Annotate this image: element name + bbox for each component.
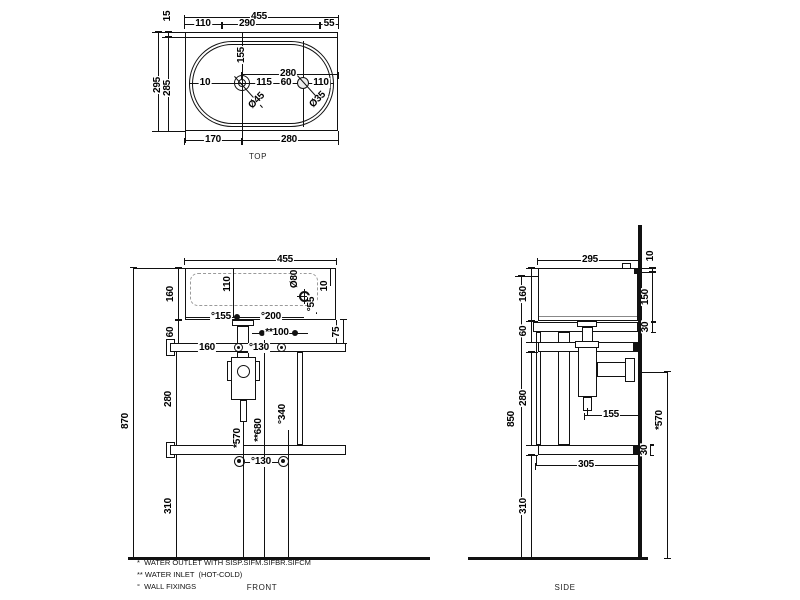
dim-line — [652, 272, 653, 322]
dim-label: 280 — [519, 389, 529, 407]
dim-label: 155 — [237, 46, 247, 64]
dim-label: 110 — [194, 19, 212, 29]
footnote-water-inlet: ** WATER INLET (HOT-COLD) — [137, 570, 242, 579]
dim-label: 115 — [255, 78, 273, 88]
dim-label: 850 — [507, 410, 517, 428]
dim-label: 10 — [320, 280, 330, 293]
dim-label: 310 — [519, 497, 529, 515]
dim-label: 55 — [323, 19, 336, 29]
dim-label: 170 — [204, 135, 222, 145]
view-caption-side: SIDE — [554, 583, 575, 592]
dim-line — [650, 445, 651, 455]
dim-label: 75 — [332, 326, 342, 339]
dim-label: 290 — [238, 19, 256, 29]
view-caption-front: FRONT — [247, 583, 278, 592]
dim-label: 160 — [198, 343, 216, 353]
basin-side-outline — [538, 268, 638, 321]
ext-line — [536, 455, 537, 465]
dim-label: °200 — [260, 312, 282, 322]
dim-label: 10 — [199, 78, 212, 88]
dim-label: °130 — [248, 343, 270, 353]
dim-label: °155 — [210, 312, 232, 322]
side-view: 295 10 150 30 160 60 280 850 155 30 305 … — [0, 0, 800, 600]
ext-line — [637, 268, 656, 269]
ext-line — [526, 352, 538, 353]
dim-label: *570 — [655, 409, 665, 431]
wall-line — [638, 225, 642, 560]
dim-line — [531, 268, 532, 321]
dim-line — [521, 276, 522, 558]
dim-label: Ø80 — [290, 269, 300, 289]
dim-label: 15 — [163, 10, 173, 23]
dim-label: **680 — [254, 417, 264, 442]
dim-label: 305 — [577, 460, 595, 470]
dim-label: **100 — [264, 328, 289, 338]
dim-label: 60 — [166, 326, 176, 339]
dim-line — [531, 321, 532, 342]
dim-label: 280 — [164, 390, 174, 408]
tap-platform — [622, 263, 631, 269]
dim-label: 285 — [163, 79, 173, 97]
footnote-water-outlet: * WATER OUTLET WITH SISP.SIFM.SIFBR.SIFC… — [137, 558, 311, 567]
dim-label: °130 — [250, 457, 272, 467]
ext-line — [642, 372, 667, 373]
waste-pipe — [597, 362, 627, 377]
dim-label: *570 — [233, 427, 243, 449]
dim-line — [531, 352, 532, 445]
wall-fixing-mark — [633, 343, 639, 352]
dim-label: 310 — [164, 497, 174, 515]
ext-line — [526, 268, 538, 269]
basin-inner-line — [539, 316, 637, 317]
technical-drawing-sheet: 455 110 290 55 15 295 285 10 155 115 280… — [0, 0, 800, 600]
dim-label: °55 — [307, 296, 317, 313]
ext-line — [515, 276, 538, 277]
dim-label: 455 — [276, 255, 294, 265]
ext-line — [587, 408, 588, 415]
dim-label: 60 — [280, 78, 293, 88]
floor-line — [468, 557, 648, 560]
dim-label: 280 — [280, 135, 298, 145]
dim-line — [667, 372, 668, 558]
dim-label: 30 — [641, 321, 651, 334]
drain-tailpipe — [582, 327, 593, 342]
dim-label: 30 — [640, 444, 650, 457]
dim-label: 10 — [646, 250, 656, 263]
wall-flange — [625, 358, 635, 382]
dim-line — [531, 455, 532, 558]
dim-label: 110 — [223, 275, 233, 293]
view-caption-top: TOP — [249, 152, 267, 161]
footnote-wall-fixings: ° WALL FIXINGS — [137, 582, 196, 591]
dim-label: 295 — [581, 255, 599, 265]
dim-label: °340 — [278, 403, 288, 425]
dim-label: 110 — [312, 78, 330, 88]
dim-label: 150 — [641, 288, 651, 306]
bottle-trap — [578, 347, 597, 397]
dim-label: 160 — [519, 285, 529, 303]
dim-label: 155 — [602, 410, 620, 420]
dim-label: 160 — [166, 285, 176, 303]
dim-label: 60 — [519, 325, 529, 338]
dim-line — [652, 322, 653, 332]
dim-label: 870 — [121, 412, 131, 430]
lower-shelf — [538, 445, 638, 455]
